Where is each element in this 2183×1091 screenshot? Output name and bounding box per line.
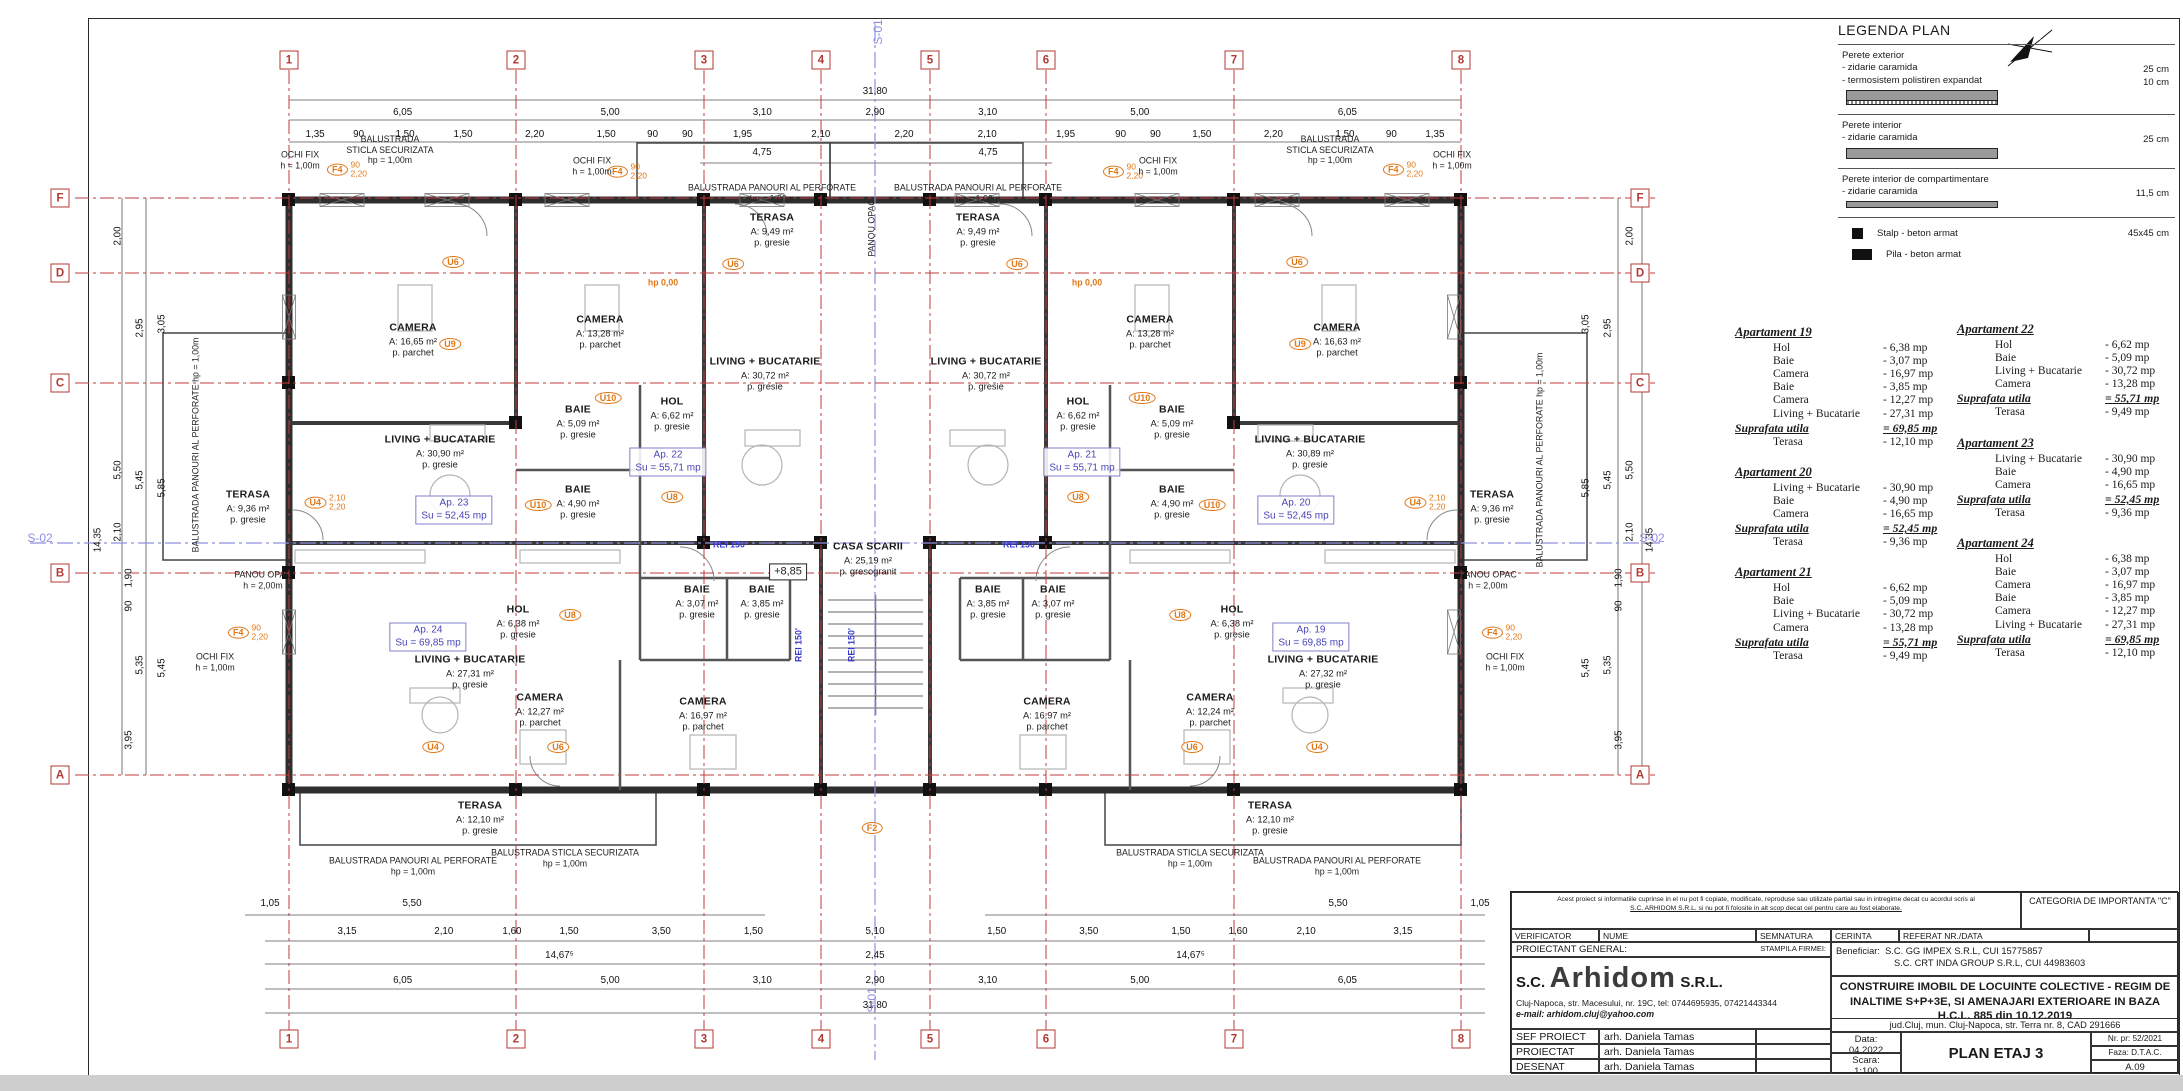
grid-bubble-row: F <box>51 189 70 208</box>
grid-bubble-col: 1 <box>280 51 299 70</box>
plan-annotation: S-02 <box>27 531 52 545</box>
cerinta-header: CERINTA <box>1831 929 1899 942</box>
project-location: jud.Cluj, mun. Cluj-Napoca, str. Terra n… <box>1831 1018 2179 1032</box>
room-label: BAIEA: 5,09 m²p. gresie <box>1151 400 1194 441</box>
joinery-marker: U10 <box>595 392 622 404</box>
dim-label: 5,00 <box>601 975 620 986</box>
dim-label: 1,90 <box>1614 568 1625 587</box>
dim-label: 3,10 <box>753 975 772 986</box>
room-label: CASA SCARIIA: 25,19 m²p. gresogranit <box>833 537 903 578</box>
apartment-tag: Ap. 20Su = 52,45 mp <box>1257 496 1334 525</box>
joinery-marker: U42,102,20 <box>1404 494 1445 513</box>
room-label: HOLA: 6,38 m²p. gresie <box>497 600 540 641</box>
room-label: LIVING + BUCATARIEA: 30,89 m²p. gresie <box>1255 430 1366 471</box>
apartment-schedule: Apartament 19Hol- 6,38 mpBaie- 3,07 mpCa… <box>1735 325 1967 449</box>
dim-label: 2,20 <box>894 129 913 140</box>
apartment-schedule: Apartament 22Hol- 6,62 mpBaie- 5,09 mpLi… <box>1957 322 2183 420</box>
apartment-tag: Ap. 21Su = 55,71 mp <box>1043 448 1120 477</box>
room-label: TERASAA: 12,10 m²p. gresie <box>1246 796 1294 837</box>
importance-category: CATEGORIA DE IMPORTANTA "C" <box>2021 892 2179 929</box>
plan-annotation: OCHI FIX h = 1,00m <box>195 651 234 672</box>
apartment-tag: Ap. 22Su = 55,71 mp <box>629 448 706 477</box>
dim-label: 90 <box>682 129 693 140</box>
dim-label: 1,50 <box>560 926 579 937</box>
plan-annotation: PANOU OPAC <box>867 199 878 256</box>
plan-annotation: BALUSTRADA PANOURI AL PERFORATE hp = 1,0… <box>1253 855 1421 876</box>
dim-label: 2,10 <box>434 926 453 937</box>
grid-bubble-col: 8 <box>1452 1030 1471 1049</box>
grid-bubble-col: 3 <box>695 51 714 70</box>
joinery-marker: U4 <box>1306 741 1328 753</box>
dim-label: 2,95 <box>1603 318 1614 337</box>
grid-bubble-row: D <box>1631 264 1650 283</box>
proiectant-general: PROIECTANT GENERAL: STAMPILA FIRMEI: <box>1511 942 1831 957</box>
joinery-marker: U6 <box>1286 256 1308 268</box>
joinery-marker: F4902,20 <box>1103 163 1143 182</box>
dim-label: 1,95 <box>733 129 752 140</box>
grid-bubble-col: 2 <box>507 51 526 70</box>
plan-annotation: hp 0,00 <box>648 278 678 289</box>
phase-cell: Faza: D.T.A.C. <box>2091 1046 2179 1060</box>
plan-annotation: BALUSTRADA PANOURI AL PERFORATE hp = 1,0… <box>1535 353 1546 568</box>
joinery-marker: U9 <box>1289 338 1311 350</box>
legend-item: Perete interior de compartimentare- zida… <box>1838 172 2175 215</box>
room-label: BAIEA: 3,07 m²p. gresie <box>1032 580 1075 621</box>
grid-bubble-col: 6 <box>1037 1030 1056 1049</box>
plan-annotation: BALUSTRADA PANOURI AL PERFORATE hp = 1,0… <box>894 182 1062 203</box>
room-label: TERASAA: 9,49 m²p. gresie <box>750 208 794 249</box>
sheet-number: A.09 <box>2091 1060 2179 1074</box>
plan-annotation: PANOU OPAC h = 2,00m <box>1459 569 1516 590</box>
dim-label: 2,10 <box>1297 926 1316 937</box>
room-label: BAIEA: 4,90 m²p. gresie <box>557 480 600 521</box>
dim-label: 5,85 <box>157 478 168 497</box>
joinery-marker: F4902,20 <box>607 163 647 182</box>
dim-label: 5,35 <box>135 655 146 674</box>
dim-label: 1,35 <box>306 129 325 140</box>
room-label: CAMERAA: 16,63 m²p. parchet <box>1313 318 1361 359</box>
dim-label: 1,95 <box>1056 129 1075 140</box>
room-label: CAMERAA: 12,24 m²p. parchet <box>1186 688 1234 729</box>
grid-bubble-row: C <box>1631 374 1650 393</box>
room-label: CAMERAA: 16,65 m²p. parchet <box>389 318 437 359</box>
room-label: LIVING + BUCATARIEA: 27,31 m²p. gresie <box>415 650 526 691</box>
dim-label: 3,15 <box>338 926 357 937</box>
plan-annotation: OCHI FIX h = 1,00m <box>280 149 319 170</box>
company-address: Cluj-Napoca, str. Macesului, nr. 19C, te… <box>1512 995 1830 1008</box>
grid-bubble-col: 7 <box>1225 1030 1244 1049</box>
role-signature-cell <box>1756 1059 1831 1074</box>
dim-label: 1,50 <box>744 926 763 937</box>
joinery-marker: F2 <box>862 822 883 834</box>
grid-bubble-row: A <box>51 766 70 785</box>
legend-title: LEGENDA PLAN <box>1838 22 2175 41</box>
dim-label: 3,95 <box>1614 730 1625 749</box>
room-label: TERASAA: 9,49 m²p. gresie <box>956 208 1000 249</box>
joinery-marker: U10 <box>525 499 552 511</box>
dim-label: 2,10 <box>978 129 997 140</box>
apartment-tag: Ap. 19Su = 69,85 mp <box>1272 623 1349 652</box>
legend-symbol-pila: Pila - beton armat <box>1852 249 2175 260</box>
room-label: CAMERAA: 13,28 m²p. parchet <box>576 310 624 351</box>
plan-annotation: OCHI FIX h = 1,00m <box>572 155 611 176</box>
grid-bubble-col: 3 <box>695 1030 714 1049</box>
plan-annotation: BALUSTRADA STICLA SECURIZATA hp = 1,00m <box>1116 847 1264 868</box>
plan-annotation: BALUSTRADA STICLA SECURIZATA hp = 1,00m <box>346 134 433 166</box>
plan-annotation: S-01 <box>865 987 879 1012</box>
dim-label: 90 <box>1386 129 1397 140</box>
role-name: arh. Daniela Tamas <box>1599 1029 1756 1044</box>
room-label: BAIEA: 3,85 m²p. gresie <box>967 580 1010 621</box>
dim-label: 1,05 <box>260 898 279 909</box>
plan-annotation: OCHI FIX h = 1,00m <box>1138 155 1177 176</box>
dim-label: 1,05 <box>1470 898 1489 909</box>
pier-symbol-icon <box>1852 249 1872 260</box>
dim-label: 6,05 <box>1338 975 1357 986</box>
joinery-marker: U42,102,20 <box>304 494 345 513</box>
verificator-header: VERIFICATOR <box>1511 929 1599 942</box>
dim-label: 6,05 <box>1338 107 1357 118</box>
dim-label: 4,75 <box>752 147 771 158</box>
dim-label: 5,50 <box>1625 460 1636 479</box>
room-label: LIVING + BUCATARIEA: 30,90 m²p. gresie <box>385 430 496 471</box>
plan-annotation: S-02 <box>1639 531 1664 545</box>
grid-bubble-col: 6 <box>1037 51 1056 70</box>
room-label: LIVING + BUCATARIEA: 30,72 m²p. gresie <box>931 352 1042 393</box>
apartment-schedule: Apartament 21Hol- 6,62 mpBaie- 5,09 mpLi… <box>1735 565 1967 663</box>
dim-label: 2,10 <box>1625 522 1636 541</box>
copyright-disclaimer: Acest proiect si informatiile cuprinse i… <box>1511 892 2021 929</box>
title-block: Acest proiect si informatiile cuprinse i… <box>1510 891 2178 1073</box>
grid-bubble-col: 4 <box>812 1030 831 1049</box>
referat-header: REFERAT NR./DATA <box>1899 929 2089 942</box>
dim-label: 1,90 <box>124 568 135 587</box>
dim-label: 90 <box>1614 601 1625 612</box>
plan-annotation: REI 150' <box>794 628 805 662</box>
semnatura-header: SEMNATURA <box>1756 929 1831 942</box>
plan-annotation: OCHI FIX h = 1,00m <box>1432 149 1471 170</box>
joinery-marker: U4 <box>422 741 444 753</box>
grid-bubble-row: F <box>1631 189 1650 208</box>
dim-label: 3,50 <box>652 926 671 937</box>
dim-label: 90 <box>124 601 135 612</box>
empty-header-cell <box>2089 929 2179 942</box>
joinery-marker: U10 <box>1129 392 1156 404</box>
column-symbol-icon <box>1852 228 1863 239</box>
grid-bubble-col: 5 <box>921 51 940 70</box>
apartment-schedule-column-1: Apartament 19Hol- 6,38 mpBaie- 3,07 mpCa… <box>1735 325 1967 679</box>
dim-label: 2,00 <box>113 226 124 245</box>
dim-label: 2,45 <box>865 950 884 961</box>
joinery-marker: F4902,20 <box>1383 161 1423 180</box>
date-cell: Data:04.2022 <box>1831 1032 1901 1053</box>
dim-label: 3,05 <box>1581 314 1592 333</box>
dim-label: 1,50 <box>454 129 473 140</box>
grid-bubble-col: 5 <box>921 1030 940 1049</box>
room-label: BAIEA: 3,85 m²p. gresie <box>741 580 784 621</box>
dim-label: 5,35 <box>1603 655 1614 674</box>
dim-label: 5,50 <box>402 898 421 909</box>
dim-label: 5,45 <box>135 470 146 489</box>
grid-bubble-row: C <box>51 374 70 393</box>
project-number-cell: Nr. pr: 52/2021 <box>2091 1032 2179 1046</box>
legend-item: Perete interior- zidarie caramida25 cm <box>1838 118 2175 165</box>
apartment-schedule-column-2: Apartament 22Hol- 6,62 mpBaie- 5,09 mpLi… <box>1957 322 2183 676</box>
dim-label: 1,35 <box>1425 129 1444 140</box>
dim-label: 3,50 <box>1079 926 1098 937</box>
room-label: LIVING + BUCATARIEA: 27,32 m²p. gresie <box>1268 650 1379 691</box>
dim-label: 3,15 <box>1393 926 1412 937</box>
apartment-schedule: Apartament 23Living + Bucatarie- 30,90 m… <box>1957 436 2183 520</box>
dim-label: 5,45 <box>1581 658 1592 677</box>
dim-label: 90 <box>647 129 658 140</box>
dim-label: 2,95 <box>135 318 146 337</box>
joinery-marker: U9 <box>439 338 461 350</box>
room-label: HOLA: 6,62 m²p. gresie <box>651 392 694 433</box>
room-label: HOLA: 6,62 m²p. gresie <box>1057 392 1100 433</box>
role-name: arh. Daniela Tamas <box>1599 1044 1756 1059</box>
grid-bubble-row: B <box>1631 564 1650 583</box>
scale-cell: Scara:1:100 <box>1831 1053 1901 1074</box>
joinery-marker: U8 <box>661 491 683 503</box>
joinery-marker: F4902,20 <box>1482 624 1522 643</box>
dim-label: 2,10 <box>113 522 124 541</box>
dim-label: 6,05 <box>393 975 412 986</box>
dim-label: 5,45 <box>1603 470 1614 489</box>
joinery-marker: U6 <box>442 256 464 268</box>
role-label: SEF PROIECT <box>1511 1029 1599 1044</box>
dim-label: 4,75 <box>978 147 997 158</box>
dim-label: 3,10 <box>753 107 772 118</box>
room-label: TERASAA: 12,10 m²p. gresie <box>456 796 504 837</box>
plan-annotation: S-01 <box>871 19 885 44</box>
joinery-marker: U8 <box>1169 609 1191 621</box>
dim-label: 3,05 <box>157 314 168 333</box>
joinery-marker: F4902,20 <box>228 624 268 643</box>
dim-label: 5,45 <box>157 658 168 677</box>
plan-annotation: hp 0,00 <box>1072 278 1102 289</box>
apartment-tag: Ap. 23Su = 52,45 mp <box>415 496 492 525</box>
room-label: CAMERAA: 16,97 m²p. parchet <box>1023 692 1071 733</box>
room-label: TERASAA: 9,36 m²p. gresie <box>226 485 270 526</box>
dim-label: 1,50 <box>1192 129 1211 140</box>
dim-label: 3,10 <box>978 107 997 118</box>
dim-label: 90 <box>1115 129 1126 140</box>
plan-annotation: REI 150' <box>1003 540 1037 551</box>
dim-label: 3,95 <box>124 730 135 749</box>
dim-label: 31,80 <box>863 86 888 97</box>
grid-bubble-row: D <box>51 264 70 283</box>
drawing-sheet: 1122334455667788FFDDCCBBAA31,806,055,003… <box>0 0 2183 1091</box>
company-email: e-mail: arhidom.cluj@yahoo.com <box>1512 1008 1830 1019</box>
grid-bubble-col: 8 <box>1452 51 1471 70</box>
joinery-marker: U10 <box>1199 499 1226 511</box>
dim-label: 90 <box>1150 129 1161 140</box>
role-signature-cell <box>1756 1029 1831 1044</box>
role-signature-cell <box>1756 1044 1831 1059</box>
project-title: CONSTRUIRE IMOBIL DE LOCUINTE COLECTIVE … <box>1831 976 2179 1018</box>
dim-label: 2,90 <box>865 975 884 986</box>
plan-annotation: BALUSTRADA STICLA SECURIZATA hp = 1,00m <box>491 847 639 868</box>
room-label: BAIEA: 3,07 m²p. gresie <box>676 580 719 621</box>
grid-bubble-row: B <box>51 564 70 583</box>
plan-annotation: REI 150' <box>847 628 858 662</box>
dim-label: 2,90 <box>865 107 884 118</box>
dim-label: 14,67⁵ <box>545 950 574 961</box>
dim-label: 2,20 <box>1264 129 1283 140</box>
dim-label: 5,00 <box>1130 107 1149 118</box>
dim-label: 2,20 <box>525 129 544 140</box>
plan-annotation: PANOU OPAC h = 2,00m <box>234 569 291 590</box>
company-logo-cell: S.C. Arhidom S.R.L. Cluj-Napoca, str. Ma… <box>1511 957 1831 1029</box>
dim-label: 3,10 <box>978 975 997 986</box>
plan-annotation: OCHI FIX h = 1,00m <box>1485 651 1524 672</box>
plan-annotation: REI 150' <box>713 540 747 551</box>
role-name: arh. Daniela Tamas <box>1599 1059 1756 1074</box>
plan-annotation: BALUSTRADA PANOURI AL PERFORATE hp = 1,0… <box>688 182 856 203</box>
dim-label: 5,00 <box>601 107 620 118</box>
sheet-title: PLAN ETAJ 3 <box>1901 1032 2091 1074</box>
room-label: TERASAA: 9,36 m²p. gresie <box>1470 485 1514 526</box>
plan-annotation: BALUSTRADA STICLA SECURIZATA hp = 1,00m <box>1286 134 1373 166</box>
role-label: DESENAT <box>1511 1059 1599 1074</box>
dim-label: 5,50 <box>1328 898 1347 909</box>
apartment-tag: Ap. 24Su = 69,85 mp <box>389 623 466 652</box>
dim-label: 14,67⁵ <box>1176 950 1205 961</box>
dim-label: 1,50 <box>1171 926 1190 937</box>
room-label: BAIEA: 4,90 m²p. gresie <box>1151 480 1194 521</box>
dim-label: 1,50 <box>987 926 1006 937</box>
joinery-marker: U6 <box>547 741 569 753</box>
grid-bubble-col: 7 <box>1225 51 1244 70</box>
plan-annotation: BALUSTRADA PANOURI AL PERFORATE hp = 1,0… <box>329 855 497 876</box>
joinery-marker: U8 <box>559 609 581 621</box>
room-label: CAMERAA: 16,97 m²p. parchet <box>679 692 727 733</box>
dim-label: 2,10 <box>811 129 830 140</box>
dim-label: 6,05 <box>393 107 412 118</box>
dim-label: 5,50 <box>113 460 124 479</box>
joinery-marker: U6 <box>722 258 744 270</box>
legend-panel: LEGENDA PLAN Perete exterior- zidarie ca… <box>1838 22 2175 260</box>
beneficiar-cell: Beneficiar: S.C. GG IMPEX S.R.L, CUI 157… <box>1831 942 2179 976</box>
apartment-schedule: Apartament 20Living + Bucatarie- 30,90 m… <box>1735 465 1967 549</box>
grid-bubble-row: A <box>1631 766 1650 785</box>
plan-annotation: +8,85 <box>769 563 807 580</box>
window-bottom-bar <box>0 1075 2183 1091</box>
dim-label: 2,00 <box>1625 226 1636 245</box>
dim-label: 1,60 <box>502 926 521 937</box>
legend-item: Perete exterior- zidarie caramida25 cm- … <box>1838 48 2175 111</box>
dim-label: 5,00 <box>1130 975 1149 986</box>
dim-label: 5,85 <box>1581 478 1592 497</box>
joinery-marker: U6 <box>1006 258 1028 270</box>
apartment-schedule: Apartament 24Hol- 6,38 mpBaie- 3,07 mpCa… <box>1957 536 2183 660</box>
room-label: CAMERAA: 13,28 m²p. parchet <box>1126 310 1174 351</box>
dim-label: 5,10 <box>865 926 884 937</box>
plan-annotation: BALUSTRADA PANOURI AL PERFORATE hp = 1,0… <box>191 338 202 553</box>
grid-bubble-col: 4 <box>812 51 831 70</box>
dim-label: 14,35 <box>93 528 104 553</box>
room-label: HOLA: 6,38 m²p. gresie <box>1211 600 1254 641</box>
dim-label: 1,60 <box>1228 926 1247 937</box>
room-label: BAIEA: 5,09 m²p. gresie <box>557 400 600 441</box>
role-label: PROIECTAT <box>1511 1044 1599 1059</box>
room-label: CAMERAA: 12,27 m²p. parchet <box>516 688 564 729</box>
grid-bubble-col: 2 <box>507 1030 526 1049</box>
dim-label: 1,50 <box>597 129 616 140</box>
grid-bubble-col: 1 <box>280 1030 299 1049</box>
joinery-marker: U6 <box>1181 741 1203 753</box>
nume-header: NUME <box>1599 929 1756 942</box>
room-label: LIVING + BUCATARIEA: 30,72 m²p. gresie <box>710 352 821 393</box>
legend-symbol-stalp: Stalp - beton armat45x45 cm <box>1852 228 2175 239</box>
joinery-marker: U8 <box>1067 491 1089 503</box>
company-logo: S.C. Arhidom S.R.L. <box>1512 958 1830 995</box>
